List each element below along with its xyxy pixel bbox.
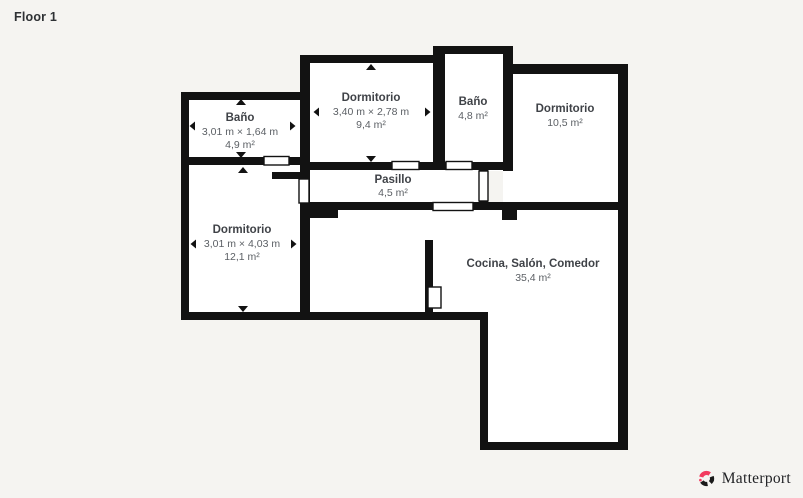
svg-text:Dormitorio: Dormitorio xyxy=(536,103,595,115)
matterport-pinwheel-icon xyxy=(697,469,716,488)
door-bano-2 xyxy=(446,162,472,170)
svg-text:3,01 m × 4,03 m: 3,01 m × 4,03 m xyxy=(204,238,280,250)
floor-plan: Baño 3,01 m × 1,64 m 4,9 m² Dormitorio 3… xyxy=(0,0,803,498)
floor-title: Floor 1 xyxy=(14,10,57,24)
door-pasillo-dorm-2 xyxy=(479,171,488,201)
door-cocina-interior xyxy=(428,287,441,308)
svg-text:Pasillo: Pasillo xyxy=(374,174,411,186)
svg-text:3,01 m × 1,64 m: 3,01 m × 1,64 m xyxy=(202,126,278,138)
svg-text:Baño: Baño xyxy=(226,112,255,124)
svg-text:9,4 m²: 9,4 m² xyxy=(356,119,386,131)
svg-text:Dormitorio: Dormitorio xyxy=(342,92,401,104)
svg-text:35,4 m²: 35,4 m² xyxy=(515,272,551,284)
room-area-cocina[interactable] xyxy=(300,202,628,450)
door-dormitorio-3 xyxy=(299,179,309,203)
svg-text:Cocina, Salón, Comedor: Cocina, Salón, Comedor xyxy=(467,258,600,270)
opening-pasillo-cocina xyxy=(433,203,473,211)
matterport-wordmark: Matterport xyxy=(722,470,791,488)
svg-text:12,1 m²: 12,1 m² xyxy=(224,251,260,263)
door-dormitorio-1 xyxy=(392,162,419,170)
room-area-dormitorio-2[interactable] xyxy=(503,64,628,210)
svg-text:4,9 m²: 4,9 m² xyxy=(225,139,255,151)
svg-text:3,40 m × 2,78 m: 3,40 m × 2,78 m xyxy=(333,106,409,118)
svg-text:Baño: Baño xyxy=(459,96,488,108)
door-bano-1 xyxy=(264,157,289,166)
svg-text:4,5 m²: 4,5 m² xyxy=(378,187,408,199)
room-label-pasillo: Pasillo 4,5 m² xyxy=(374,174,411,199)
svg-text:10,5 m²: 10,5 m² xyxy=(547,117,583,129)
svg-text:4,8 m²: 4,8 m² xyxy=(458,110,488,122)
floorplan-page: Floor 1 xyxy=(0,0,803,498)
matterport-logo[interactable]: Matterport xyxy=(697,469,791,488)
svg-text:Dormitorio: Dormitorio xyxy=(213,224,272,236)
room-area-bano-2[interactable] xyxy=(435,46,513,171)
